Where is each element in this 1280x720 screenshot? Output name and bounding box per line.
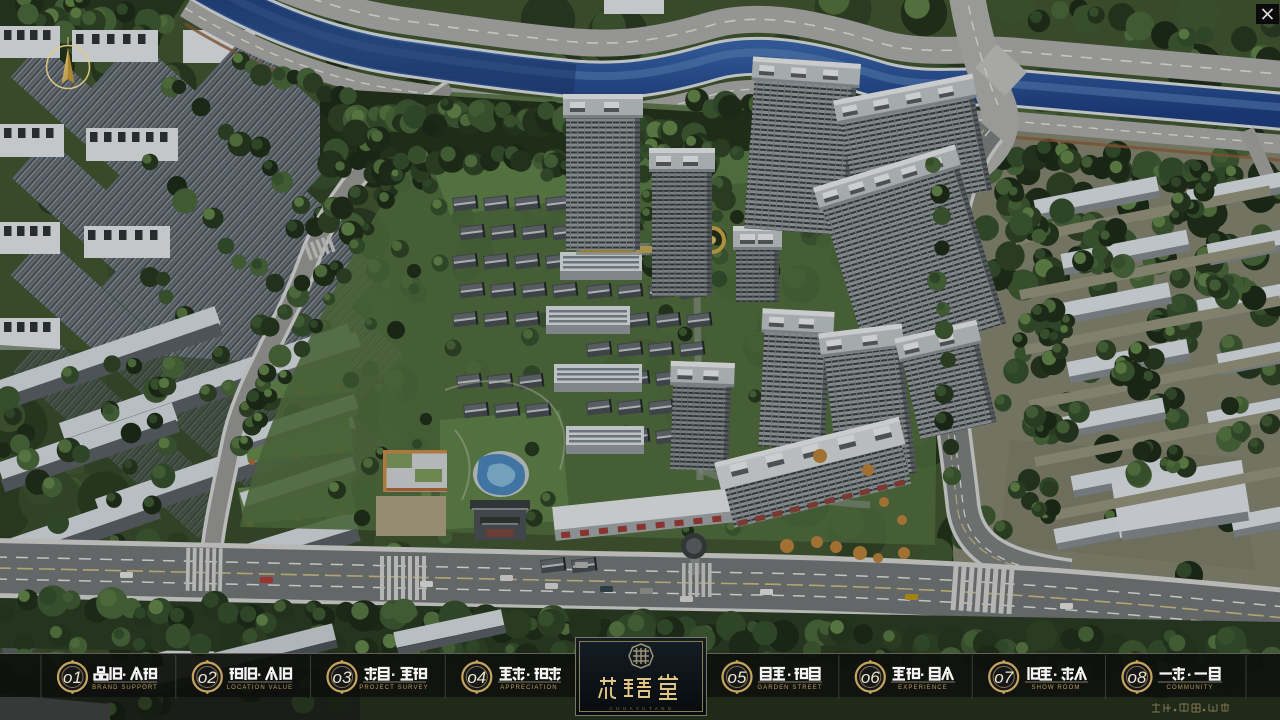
- svg-text:o5: o5: [728, 668, 747, 687]
- svg-text:BRAND SUPPORT: BRAND SUPPORT: [92, 685, 158, 691]
- svg-text:APPRECIATION: APPRECIATION: [500, 685, 557, 691]
- svg-text:o1: o1: [63, 668, 82, 687]
- svg-text:PROJECT SURVEY: PROJECT SURVEY: [359, 685, 429, 691]
- svg-text:o2: o2: [198, 668, 217, 687]
- svg-text:COMMUNITY: COMMUNITY: [1167, 685, 1214, 691]
- svg-text:o6: o6: [861, 668, 880, 687]
- svg-text:LOCATION VALUE: LOCATION VALUE: [227, 685, 294, 691]
- svg-text:GARDEN STREET: GARDEN STREET: [757, 685, 822, 691]
- svg-text:o7: o7: [994, 668, 1013, 687]
- svg-text:o8: o8: [1128, 668, 1147, 687]
- svg-text:o3: o3: [333, 668, 352, 687]
- svg-text:C H U A Y U T A N G: C H U A Y U T A N G: [609, 706, 672, 711]
- svg-text:o4: o4: [467, 668, 486, 687]
- svg-text:EXPERIENCE: EXPERIENCE: [898, 685, 948, 691]
- svg-text:SHOW ROOM: SHOW ROOM: [1032, 685, 1081, 691]
